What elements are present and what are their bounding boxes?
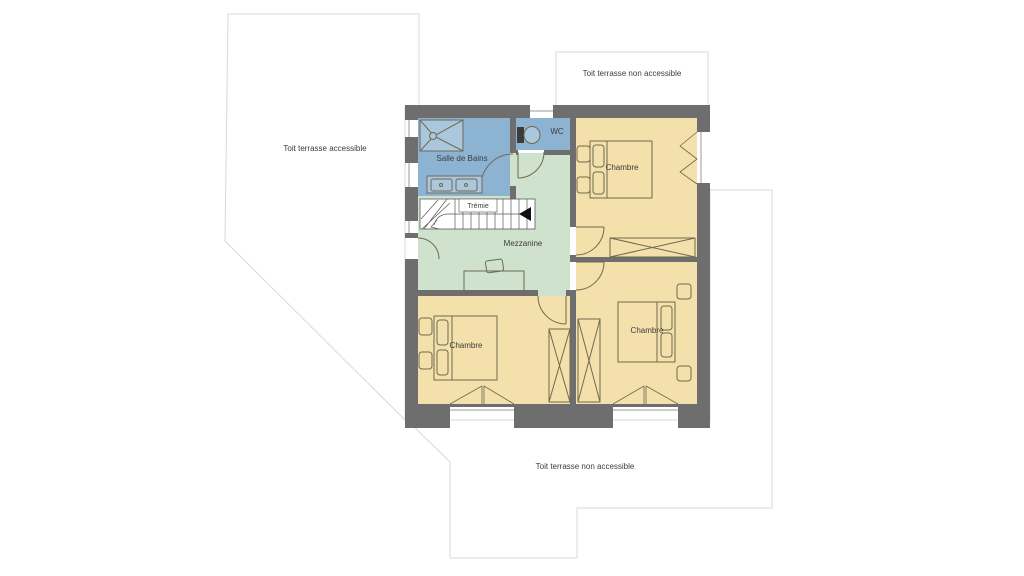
wall-top-left-segment <box>405 105 530 118</box>
wall-mezzanine-bedroom-b <box>566 290 570 296</box>
floor-plan: Toit terrasse accessible Toit terrasse n… <box>0 0 1024 576</box>
staircase: Trémie <box>420 199 535 229</box>
room-label-mezzanine: Mezzanine <box>504 239 543 248</box>
wall-corridor-seg1 <box>570 118 576 227</box>
terrace-bottom-label: Toit terrasse non accessible <box>536 462 635 471</box>
tremie-label: Trémie <box>467 203 489 210</box>
wall-bath-stub <box>510 186 516 199</box>
room-bedroom-top-right-floor <box>576 118 697 257</box>
wall-mezzanine-bedroom-a <box>418 290 538 296</box>
wall-bottom-seg3 <box>678 404 710 428</box>
wall-top-right-segment <box>553 105 710 118</box>
wall-bath-wc-divider <box>510 118 516 153</box>
room-corridor-floor <box>510 153 570 196</box>
room-label-bedroom-top-right: Chambre <box>606 163 639 172</box>
terrace-left-label: Toit terrasse accessible <box>283 144 367 153</box>
shower <box>420 120 463 151</box>
room-label-wc: WC <box>550 127 564 136</box>
wall-right-seg1 <box>697 105 710 132</box>
wall-left-seg1 <box>405 105 418 120</box>
wall-bottom-seg2 <box>514 404 613 428</box>
wall-left-seg4 <box>405 233 418 238</box>
terrace-left: Toit terrasse accessible <box>225 14 419 420</box>
terrace-left-outline <box>225 14 419 420</box>
wall-wc-bottom-b <box>544 150 570 155</box>
terrace-top-right-label: Toit terrasse non accessible <box>583 69 682 78</box>
wall-left-seg2 <box>405 137 418 163</box>
shower-drain <box>430 133 437 140</box>
wall-bottom-strip1 <box>450 404 514 407</box>
room-label-bedroom-bottom-right: Chambre <box>631 326 664 335</box>
wall-left-seg5 <box>405 259 418 428</box>
wall-bottom-seg1 <box>405 404 450 428</box>
room-label-bedroom-bottom-left: Chambre <box>450 341 483 350</box>
terrace-top-right-outline <box>556 52 708 107</box>
wall-bottom-strip2 <box>613 404 678 407</box>
toilet-tank <box>517 127 524 143</box>
room-label-bathroom: Salle de Bains <box>436 154 487 163</box>
wall-bedrooms-divider <box>576 257 697 262</box>
wall-right-seg2 <box>697 183 710 428</box>
wall-corridor-seg2 <box>570 255 576 262</box>
terrace-top-right: Toit terrasse non accessible <box>556 52 708 107</box>
wall-left-seg3 <box>405 187 418 221</box>
toilet-bowl <box>524 127 540 144</box>
wall-corridor-seg3 <box>570 290 576 404</box>
